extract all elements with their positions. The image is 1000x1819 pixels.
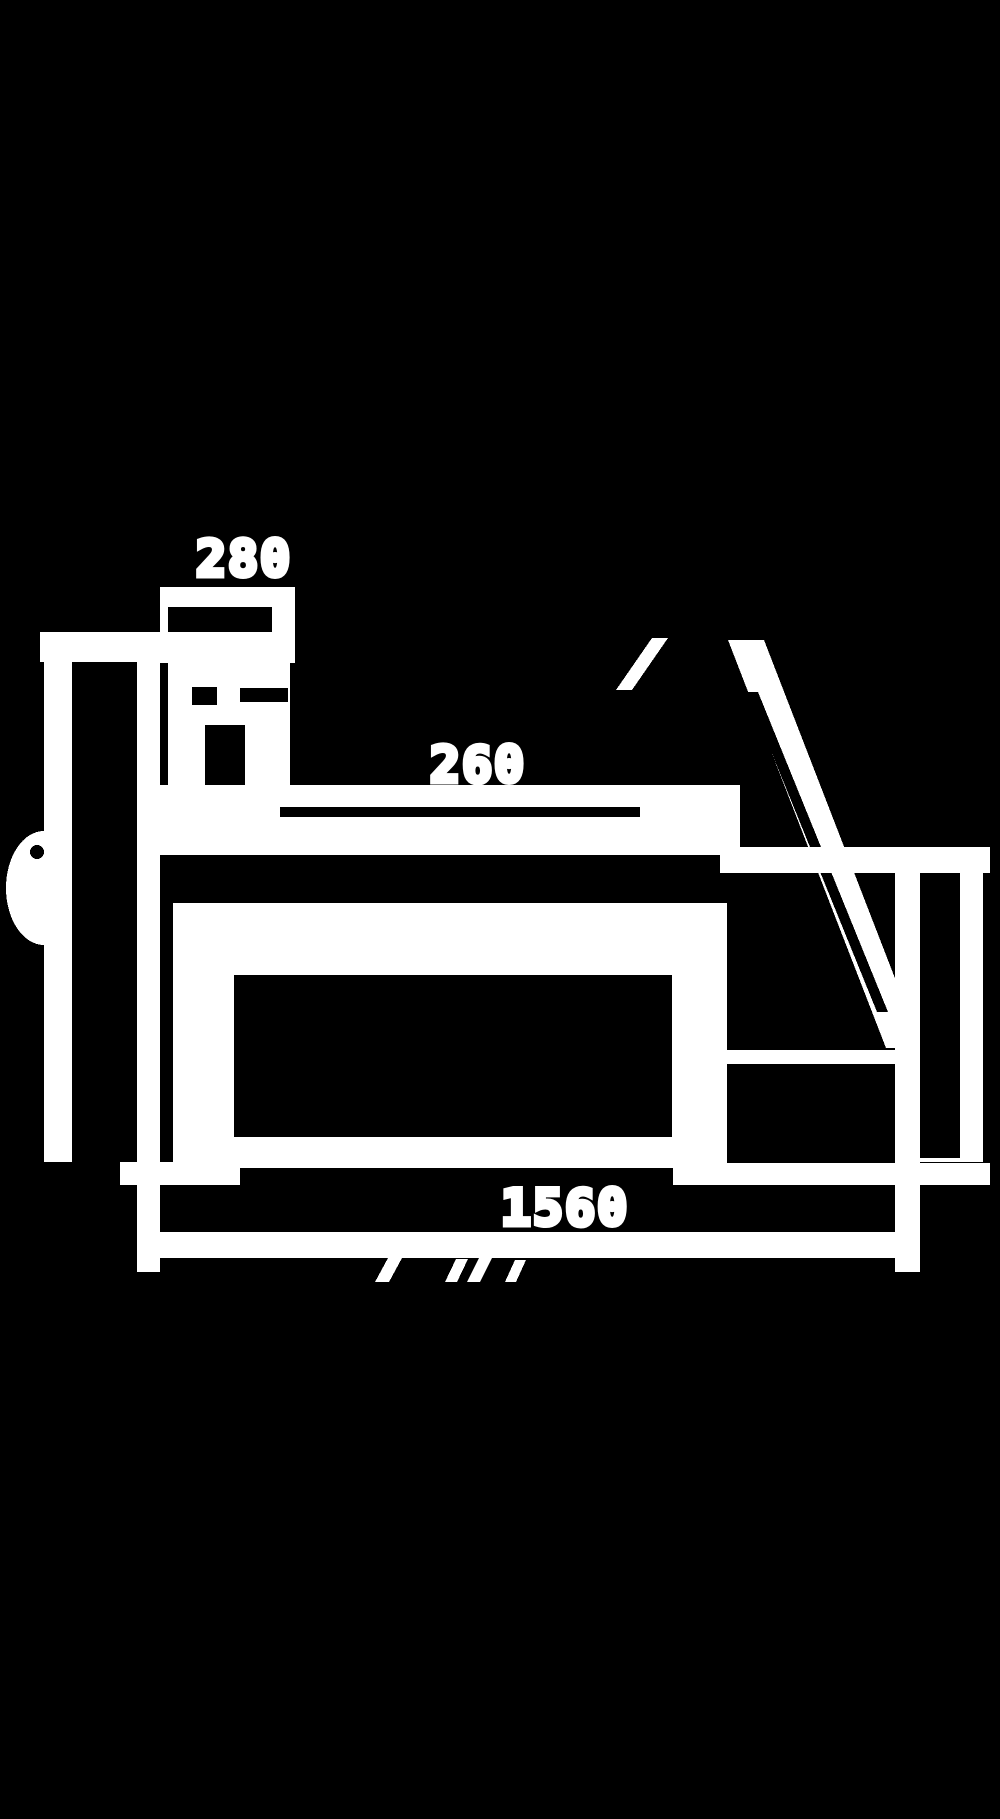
table-top	[160, 785, 740, 855]
label-dim-260: 260	[430, 736, 526, 794]
left-leg-right-edge	[137, 632, 160, 1162]
body-box-inner	[234, 975, 672, 1137]
knob-hole	[30, 845, 44, 859]
strut-upper-tick	[616, 638, 668, 690]
dim-tick-2	[445, 1259, 468, 1282]
label-dim-280: 280	[196, 530, 292, 588]
right-shelf	[720, 847, 990, 873]
left-leg-left-edge	[44, 632, 72, 1162]
bracket-slot	[205, 725, 245, 790]
right-leg-inner	[920, 873, 960, 1158]
control-box-inner	[168, 607, 272, 632]
left-leg-interior	[72, 662, 137, 1162]
bracket-hole-left	[192, 687, 217, 705]
bracket-hole-right	[240, 688, 288, 702]
technical-drawing: 2802601560	[0, 0, 1000, 1819]
extension-line-left	[137, 1160, 160, 1272]
table-slit	[280, 807, 640, 817]
horizontal-member	[727, 1050, 897, 1064]
label-dim-1560: 1560	[501, 1179, 629, 1237]
right-foot	[673, 1163, 990, 1185]
dim-tick-4	[505, 1260, 526, 1282]
drawing-canvas: 2802601560	[0, 0, 1000, 1819]
dim-tick-1	[375, 1258, 402, 1282]
dim-tick-3	[467, 1258, 492, 1282]
